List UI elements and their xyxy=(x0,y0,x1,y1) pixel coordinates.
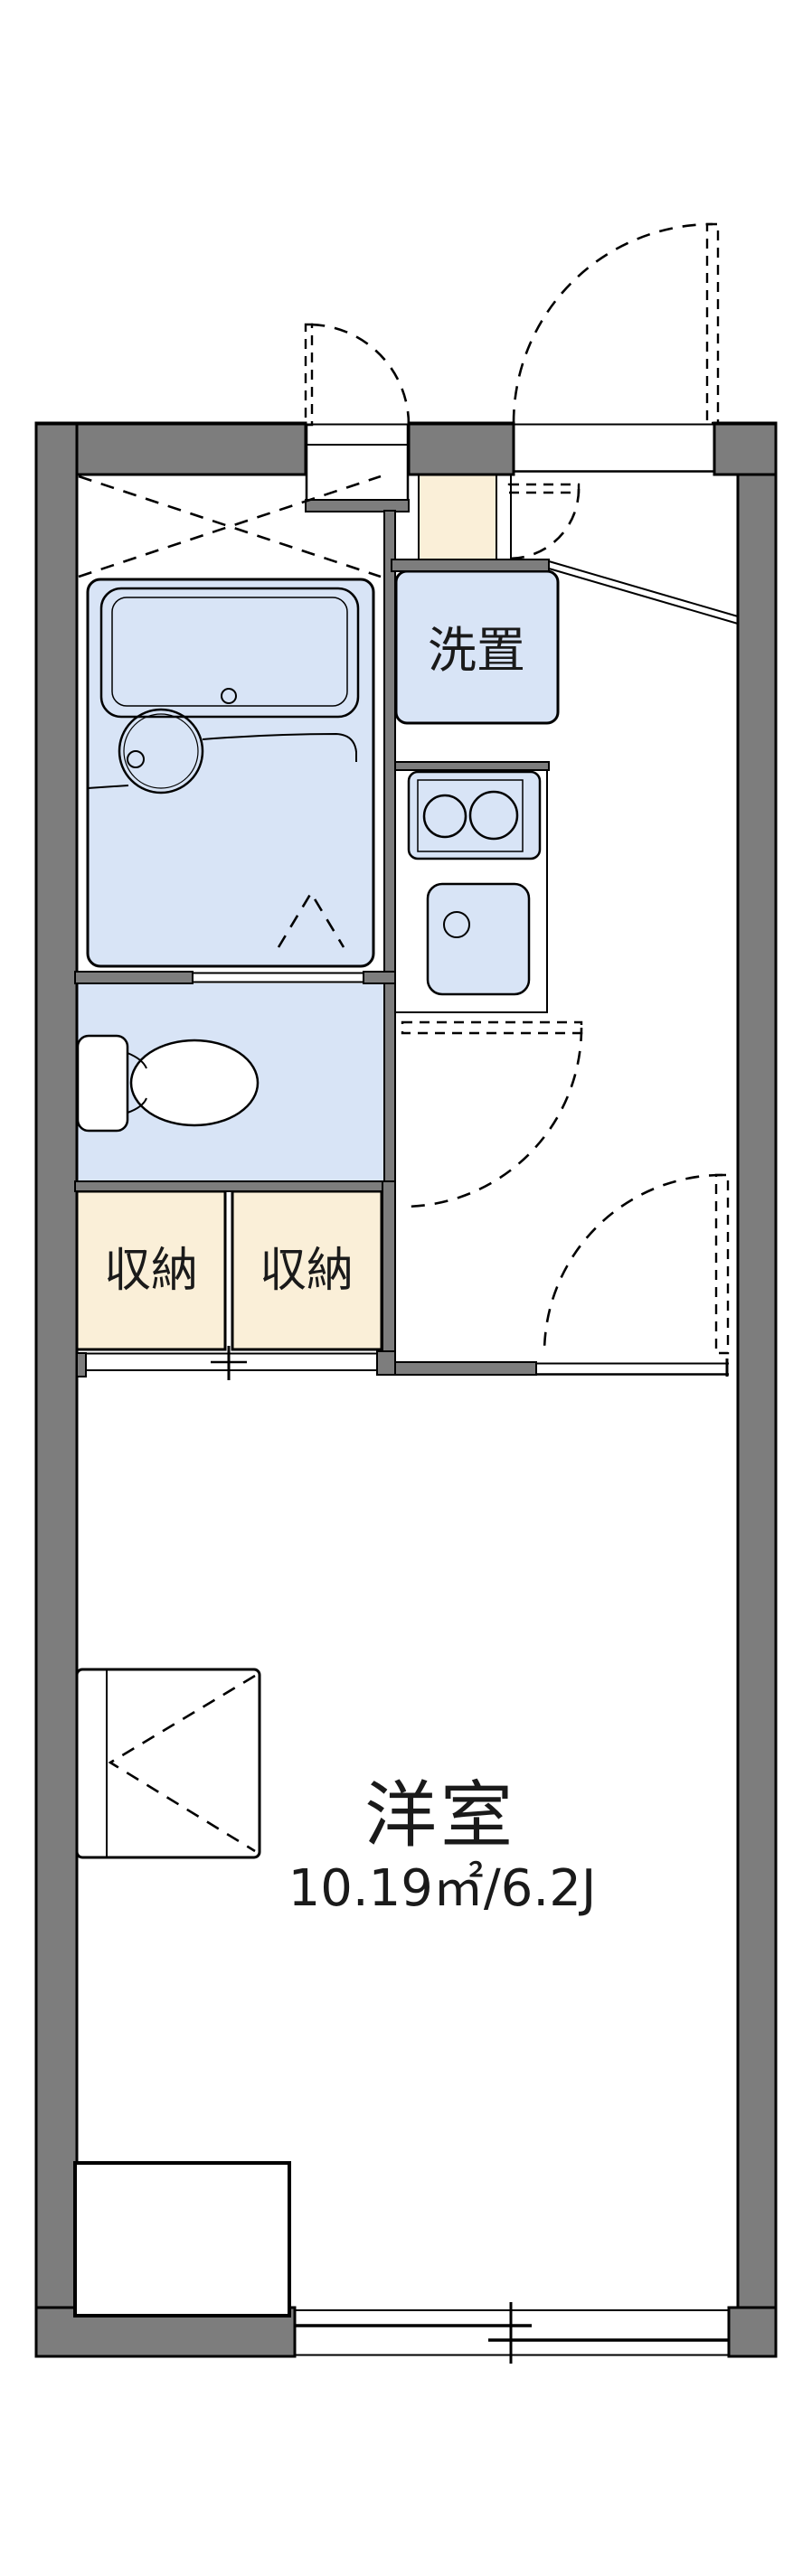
entrance-side-wall xyxy=(496,472,511,568)
kitchen-counter-edge xyxy=(392,762,549,770)
kitchen-sink-icon xyxy=(428,884,529,994)
laundry-space: 洗置 xyxy=(396,571,558,723)
bathroom-bottom-wall-left xyxy=(75,972,193,983)
main-room-label: 洋室 xyxy=(364,1773,516,1857)
entrance-floor xyxy=(419,473,496,566)
wall-right xyxy=(738,475,776,2356)
entrance-step xyxy=(392,559,549,571)
wall-hall-bottom xyxy=(395,1362,536,1375)
wall-bottom-right xyxy=(729,2308,776,2356)
toilet-tank-icon xyxy=(78,1036,127,1131)
wall-sliding-left-jamb xyxy=(77,1353,86,1377)
wall-left xyxy=(36,423,77,2356)
floor-plan-svg: 洗置 収納 収納 xyxy=(0,0,812,2576)
folding-desk xyxy=(77,1669,260,1857)
floor-plan-page: 洗置 収納 収納 xyxy=(0,0,812,2576)
wall-storage-hall xyxy=(382,1181,395,1353)
storage-left-label: 収納 xyxy=(104,1244,198,1298)
wall-bath-column xyxy=(384,511,395,1181)
wall-hall-corner xyxy=(377,1351,395,1375)
wall-top-right xyxy=(714,423,776,475)
toilet-bowl-icon xyxy=(131,1040,258,1125)
bathroom-unit xyxy=(88,579,373,966)
stove-icon xyxy=(409,772,540,859)
main-room-size: 10.19㎡/6.2J xyxy=(288,1859,597,1918)
wall-top-mid xyxy=(409,423,514,475)
storage-right-label: 収納 xyxy=(260,1244,354,1298)
toilet-bottom-wall xyxy=(75,1181,395,1191)
laundry-label: 洗置 xyxy=(428,622,525,679)
counter-box xyxy=(75,2163,289,2316)
toilet-room xyxy=(77,983,384,1181)
bathroom-bottom-wall-right xyxy=(364,972,395,983)
kitchen xyxy=(392,762,549,1012)
